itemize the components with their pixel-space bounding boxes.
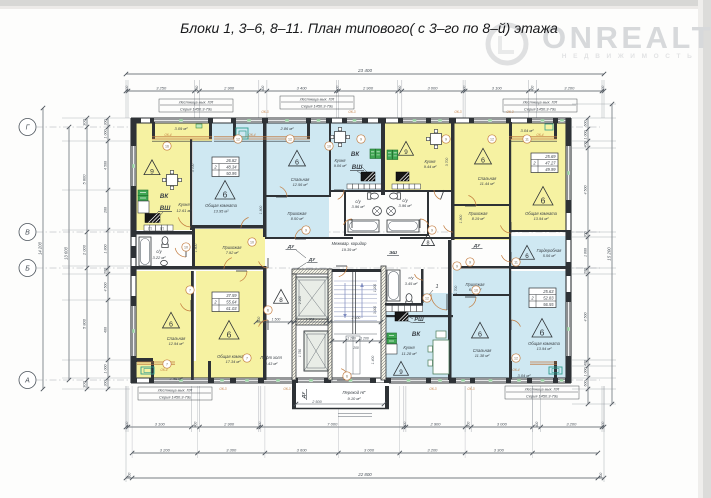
svg-text:200: 200 <box>584 232 588 239</box>
svg-text:7 000: 7 000 <box>327 421 338 426</box>
svg-text:300: 300 <box>599 472 603 478</box>
svg-text:3 000: 3 000 <box>373 306 377 314</box>
svg-text:Серия 1450.3-79s: Серия 1450.3-79s <box>159 394 191 399</box>
svg-text:ОК-3: ОК-3 <box>219 387 226 391</box>
svg-text:12: 12 <box>288 138 292 142</box>
svg-text:61.03: 61.03 <box>226 306 237 311</box>
svg-text:11: 11 <box>514 261 518 265</box>
svg-text:12.61 м²: 12.61 м² <box>176 208 192 213</box>
svg-text:2 900: 2 900 <box>223 85 235 90</box>
svg-text:1 800: 1 800 <box>584 248 588 257</box>
svg-text:9: 9 <box>305 229 307 233</box>
svg-text:6: 6 <box>295 159 299 167</box>
svg-text:А: А <box>24 378 30 385</box>
svg-text:8.50 м²: 8.50 м² <box>291 216 304 221</box>
svg-text:1 750: 1 750 <box>298 349 302 357</box>
svg-text:1 200: 1 200 <box>347 336 356 340</box>
svg-text:Серия 1450.3-79s: Серия 1450.3-79s <box>524 106 556 111</box>
svg-text:11.38 м²: 11.38 м² <box>475 353 490 358</box>
svg-text:Лестница вых. ПЛ: Лестница вых. ПЛ <box>178 100 214 105</box>
svg-text:Лестница вых. ПЛ: Лестница вых. ПЛ <box>522 100 558 105</box>
svg-text:ДУ: ДУ <box>473 243 481 248</box>
svg-text:Лестница вых. ПЛ: Лестница вых. ПЛ <box>299 97 335 102</box>
svg-text:55.64: 55.64 <box>226 300 237 305</box>
svg-text:11.44 м²: 11.44 м² <box>480 181 495 186</box>
svg-text:2.94 м²: 2.94 м² <box>169 376 184 381</box>
svg-text:1 200: 1 200 <box>360 336 369 340</box>
svg-text:12: 12 <box>236 138 240 142</box>
svg-text:9: 9 <box>404 149 408 156</box>
svg-text:Серия 1450.3-79s: Серия 1450.3-79s <box>301 103 333 108</box>
svg-text:15 200: 15 200 <box>607 247 612 261</box>
svg-text:12: 12 <box>514 357 518 361</box>
svg-text:13.94 м²: 13.94 м² <box>537 346 552 351</box>
svg-text:Переход НГ: Переход НГ <box>343 390 367 395</box>
svg-text:5.56 м²: 5.56 м² <box>543 253 556 258</box>
svg-text:8: 8 <box>426 241 429 247</box>
svg-text:400: 400 <box>584 142 588 148</box>
svg-text:17.34 м²: 17.34 м² <box>226 359 241 364</box>
svg-text:8.19 м²: 8.19 м² <box>472 216 485 221</box>
svg-text:1 400: 1 400 <box>371 356 375 365</box>
svg-text:25.69: 25.69 <box>544 154 556 159</box>
svg-text:300: 300 <box>104 120 108 126</box>
svg-text:Общая комната: Общая комната <box>205 203 238 208</box>
svg-text:300: 300 <box>82 380 87 387</box>
svg-text:9.06 м²: 9.06 м² <box>334 163 347 168</box>
svg-text:ОК-3: ОК-3 <box>283 387 290 391</box>
svg-text:9.10 м²: 9.10 м² <box>348 396 362 401</box>
svg-text:ВК: ВК <box>412 331 421 338</box>
svg-text:13 600: 13 600 <box>64 246 69 259</box>
svg-text:12.94 м²: 12.94 м² <box>169 341 184 346</box>
svg-text:3 250: 3 250 <box>156 85 167 90</box>
svg-text:3 000: 3 000 <box>497 421 508 426</box>
svg-text:ПТ: ПТ <box>148 227 152 231</box>
svg-text:9: 9 <box>469 261 471 265</box>
svg-text:2 600: 2 600 <box>351 316 361 320</box>
svg-text:1 500: 1 500 <box>272 317 281 321</box>
svg-text:3 000: 3 000 <box>364 447 375 452</box>
svg-text:2 900: 2 900 <box>223 421 235 426</box>
svg-text:52.83: 52.83 <box>543 296 554 301</box>
svg-text:ОК-4: ОК-4 <box>512 368 519 372</box>
svg-text:ДУ: ДУ <box>301 391 306 399</box>
svg-text:6: 6 <box>481 157 485 165</box>
svg-text:400: 400 <box>261 85 265 91</box>
svg-text:6: 6 <box>267 309 269 313</box>
svg-text:1 800: 1 800 <box>259 206 263 215</box>
svg-text:ДУ: ДУ <box>308 257 316 262</box>
svg-text:14 200: 14 200 <box>38 241 43 254</box>
svg-text:9: 9 <box>445 138 447 142</box>
svg-text:10: 10 <box>184 246 188 250</box>
svg-text:400: 400 <box>584 360 588 366</box>
svg-text:300: 300 <box>466 421 470 427</box>
svg-text:5 800: 5 800 <box>82 318 87 329</box>
svg-text:3.04 м²: 3.04 м² <box>518 373 532 378</box>
svg-text:200: 200 <box>326 316 330 323</box>
svg-text:23 400: 23 400 <box>357 68 372 73</box>
svg-text:ONREALT: ONREALT <box>542 20 711 55</box>
svg-text:2 200: 2 200 <box>298 296 302 305</box>
svg-text:7: 7 <box>246 357 248 361</box>
svg-text:Лестница вых. ПЛ: Лестница вых. ПЛ <box>157 388 193 393</box>
svg-text:3 300: 3 300 <box>226 447 237 452</box>
svg-text:1 800: 1 800 <box>459 215 463 224</box>
svg-text:1 000: 1 000 <box>584 131 588 140</box>
svg-text:600: 600 <box>584 381 588 387</box>
svg-text:7.92 м²: 7.92 м² <box>226 250 239 255</box>
svg-text:16: 16 <box>165 145 169 149</box>
svg-text:Лестница вых. ПЛ: Лестница вых. ПЛ <box>524 387 560 392</box>
svg-text:6: 6 <box>540 328 545 338</box>
svg-text:ОК-4: ОК-4 <box>536 133 543 137</box>
svg-text:ВШ: ВШ <box>352 164 363 171</box>
svg-text:6: 6 <box>227 330 232 340</box>
svg-text:5 800: 5 800 <box>82 174 87 185</box>
svg-text:9: 9 <box>399 369 403 376</box>
svg-text:3 400: 3 400 <box>297 85 308 90</box>
svg-text:6: 6 <box>525 253 529 260</box>
svg-text:3 000: 3 000 <box>427 85 438 90</box>
svg-text:Блоки 1, 3–6, 8–11. План т: Блоки 1, 3–6, 8–11. План типового( с 3–г… <box>180 20 558 36</box>
svg-text:7: 7 <box>166 363 168 367</box>
svg-text:2 500: 2 500 <box>311 400 322 404</box>
svg-text:9: 9 <box>431 229 433 233</box>
svg-text:300: 300 <box>104 381 108 387</box>
svg-text:11: 11 <box>525 138 529 142</box>
svg-text:6: 6 <box>541 196 546 206</box>
svg-text:12.56 м²: 12.56 м² <box>293 182 308 187</box>
svg-text:3 100: 3 100 <box>492 85 503 90</box>
svg-text:2 900: 2 900 <box>362 85 374 90</box>
svg-text:9.44 м²: 9.44 м² <box>424 164 437 169</box>
svg-text:2 900: 2 900 <box>429 421 441 426</box>
svg-text:ПТ: ПТ <box>160 227 164 231</box>
svg-text:ОК-3: ОК-3 <box>454 110 461 114</box>
svg-text:56.55: 56.55 <box>543 302 554 307</box>
svg-text:3.96 м²: 3.96 м² <box>399 203 413 208</box>
svg-text:26.82: 26.82 <box>225 158 237 163</box>
svg-text:Межквар. коридор: Межквар. коридор <box>332 241 368 246</box>
svg-text:7: 7 <box>189 289 191 293</box>
svg-text:Н Е Д В И Ж И М О С Т Ь: Н Е Д В И Ж И М О С Т Ь <box>562 53 694 60</box>
svg-text:3 700: 3 700 <box>445 158 449 167</box>
svg-text:1 700: 1 700 <box>454 286 458 295</box>
svg-text:Лифт холл: Лифт холл <box>259 355 283 360</box>
svg-text:3 200: 3 200 <box>564 85 575 90</box>
svg-text:400: 400 <box>531 85 535 91</box>
svg-text:600: 600 <box>584 121 588 127</box>
svg-text:ОК-3: ОК-3 <box>261 110 268 114</box>
svg-text:300: 300 <box>82 118 87 125</box>
svg-text:ОК-3: ОК-3 <box>467 387 474 391</box>
svg-text:ОК-3: ОК-3 <box>429 387 436 391</box>
svg-text:1 800: 1 800 <box>194 244 198 253</box>
svg-text:6: 6 <box>169 321 173 329</box>
svg-text:200: 200 <box>352 346 359 350</box>
svg-text:2 000: 2 000 <box>82 244 87 256</box>
svg-text:1 800: 1 800 <box>104 245 108 254</box>
svg-text:10: 10 <box>327 145 331 149</box>
svg-text:6: 6 <box>478 331 482 339</box>
svg-text:37.59: 37.59 <box>226 293 237 298</box>
svg-text:ЭШ: ЭШ <box>389 250 397 255</box>
svg-text:3 700: 3 700 <box>191 164 195 173</box>
svg-text:22 800: 22 800 <box>357 472 372 477</box>
svg-text:48.34: 48.34 <box>226 165 237 170</box>
svg-text:1 700: 1 700 <box>306 317 315 321</box>
svg-text:8.43 м²: 8.43 м² <box>265 361 278 366</box>
svg-text:49.99: 49.99 <box>545 167 556 172</box>
svg-text:3.09 м²: 3.09 м² <box>175 126 189 131</box>
svg-text:3.22 м²: 3.22 м² <box>153 255 167 260</box>
svg-text:300: 300 <box>257 316 261 322</box>
svg-text:8: 8 <box>279 297 283 304</box>
svg-text:Кухня: Кухня <box>403 345 415 350</box>
svg-text:12: 12 <box>425 297 429 301</box>
svg-text:3 300: 3 300 <box>494 447 505 452</box>
svg-text:ВК: ВК <box>351 151 360 158</box>
svg-text:11.28 м²: 11.28 м² <box>402 351 418 356</box>
svg-text:1 000: 1 000 <box>104 130 108 139</box>
svg-text:РШ: РШ <box>414 317 424 323</box>
svg-text:1 000: 1 000 <box>584 368 588 377</box>
svg-text:6: 6 <box>223 190 228 200</box>
svg-text:1: 1 <box>435 284 438 290</box>
svg-text:50.95: 50.95 <box>226 171 237 176</box>
svg-text:3 200: 3 200 <box>160 447 171 452</box>
svg-text:200: 200 <box>398 85 402 92</box>
svg-text:В: В <box>25 230 30 237</box>
svg-text:6: 6 <box>346 375 348 379</box>
svg-text:3 200: 3 200 <box>427 447 438 452</box>
svg-text:2.86 м²: 2.86 м² <box>280 126 295 131</box>
svg-text:3.45 м²: 3.45 м² <box>405 281 418 286</box>
svg-text:10: 10 <box>474 289 478 293</box>
svg-text:1 000: 1 000 <box>104 365 108 374</box>
svg-text:4 500: 4 500 <box>584 186 588 195</box>
svg-text:Серия 1450.3-79s: Серия 1450.3-79s <box>526 393 558 398</box>
svg-text:200: 200 <box>104 207 108 214</box>
svg-text:3 600: 3 600 <box>297 447 308 452</box>
svg-text:ОК-3: ОК-3 <box>348 110 355 114</box>
svg-text:400: 400 <box>104 327 108 333</box>
svg-text:3.04 м²: 3.04 м² <box>521 128 535 133</box>
svg-text:25.63: 25.63 <box>542 289 554 294</box>
svg-text:ВШ: ВШ <box>160 205 171 212</box>
svg-text:4 500: 4 500 <box>104 283 108 292</box>
svg-text:9: 9 <box>360 138 362 142</box>
svg-text:1 200: 1 200 <box>373 284 377 292</box>
svg-text:13.94 м²: 13.94 м² <box>534 216 549 221</box>
svg-text:ДУ: ДУ <box>287 244 295 249</box>
svg-text:Кухня: Кухня <box>178 202 190 207</box>
svg-text:3.96 м²: 3.96 м² <box>352 204 366 209</box>
svg-text:ОК-4: ОК-4 <box>248 133 255 137</box>
svg-text:250: 250 <box>195 85 199 92</box>
svg-text:с/у: с/у <box>156 249 162 254</box>
svg-text:4 500: 4 500 <box>584 313 588 322</box>
svg-text:9: 9 <box>456 265 458 269</box>
svg-text:4 500: 4 500 <box>104 161 108 170</box>
svg-text:400: 400 <box>535 421 539 427</box>
svg-text:9: 9 <box>150 168 154 175</box>
svg-text:19.39 м²: 19.39 м² <box>342 247 357 252</box>
svg-text:400: 400 <box>194 421 198 427</box>
svg-text:13.95 м²: 13.95 м² <box>214 209 229 214</box>
svg-text:12: 12 <box>490 138 494 142</box>
svg-text:ВК: ВК <box>160 193 169 200</box>
svg-text:ОК-3: ОК-3 <box>506 110 513 114</box>
svg-text:300: 300 <box>127 472 131 478</box>
svg-text:Б: Б <box>25 266 30 273</box>
svg-text:10: 10 <box>250 241 254 245</box>
svg-text:47.27: 47.27 <box>545 161 556 166</box>
svg-text:3 100: 3 100 <box>155 421 166 426</box>
svg-text:ОК-4: ОК-4 <box>160 368 167 372</box>
svg-text:ОК-4: ОК-4 <box>164 133 171 137</box>
svg-text:3 200: 3 200 <box>566 421 577 426</box>
svg-text:Серия 1450.3-79s: Серия 1450.3-79s <box>180 106 212 111</box>
